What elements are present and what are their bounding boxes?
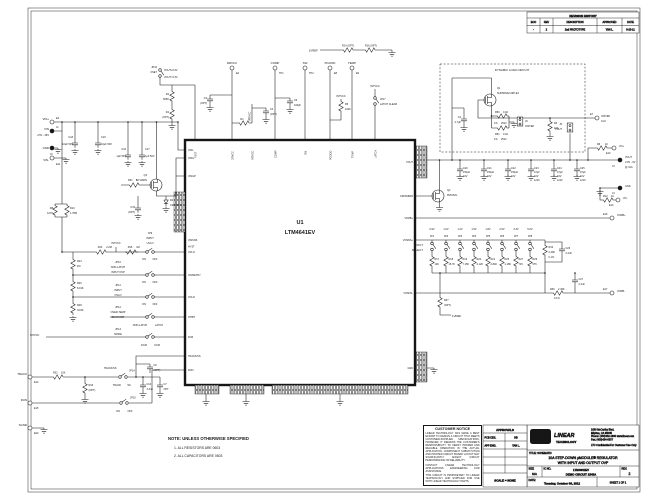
terminal-vin-minus[interactable]	[50, 156, 54, 160]
jumper-jp3[interactable]	[459, 242, 464, 251]
label-jp15-off: OFF	[128, 410, 133, 413]
input-section: VIN+ E3 VIN 4.5V - 38V J1 GND J2 VIN- E1…	[37, 117, 185, 252]
sel-v-7: 5.0V	[527, 228, 532, 231]
jumper-jp17-latch-clear[interactable]	[374, 97, 379, 106]
ground-symbol	[547, 135, 554, 140]
label-j5: J5	[559, 123, 562, 126]
testpoint-pgood[interactable]	[328, 66, 332, 70]
rev-val-desc: 2nd PROTOTYPE	[565, 29, 586, 32]
jumper-jp9[interactable]	[146, 248, 155, 253]
ground-symbol	[263, 118, 270, 123]
sel-r-6: R27	[519, 258, 524, 261]
company-name2: TECHNOLOGY	[556, 440, 576, 444]
label-c10: C10	[147, 383, 152, 386]
label-r3: R3	[554, 122, 558, 125]
jumper-jp1[interactable]	[431, 242, 436, 251]
label-e11: E11	[56, 163, 61, 166]
jack-gnd-out[interactable]	[618, 186, 622, 190]
cap-c10	[140, 382, 146, 390]
label-jp11-fn1: INPUT	[114, 289, 122, 292]
label-c22-v1: 150µF	[511, 171, 519, 174]
label-e14: E14	[34, 381, 39, 384]
label-c18: C18	[68, 136, 73, 139]
ground-symbol	[389, 51, 396, 56]
jumper-jp2[interactable]	[445, 242, 450, 251]
label-j5-fn: VOUT	[555, 128, 562, 131]
pin-sw: SW	[305, 150, 308, 155]
company-addr4: Fax: (408)434-0507	[591, 438, 614, 441]
label-r6: R6	[597, 143, 601, 146]
label-vin-plus: VIN+	[42, 117, 49, 121]
label-r28-value: 34.8K	[77, 309, 84, 312]
sel-r-2: R19	[463, 258, 468, 261]
jumper-jp6[interactable]	[501, 242, 506, 251]
label-jp14: JP14	[129, 370, 135, 373]
label-c4-opt: (OPT)	[270, 113, 277, 116]
sel-jp-6: JP7	[514, 235, 519, 238]
terminal-track[interactable]	[28, 375, 32, 379]
label-c4: C4	[270, 108, 274, 111]
jumper-jp10[interactable]	[146, 271, 155, 276]
vout-select-label2: SELECT	[412, 248, 423, 252]
label-r15: R15	[128, 246, 133, 249]
cap-c7	[157, 382, 163, 390]
label-r10: R10	[70, 207, 75, 210]
label-e10: E10	[606, 152, 611, 155]
ground-symbol	[169, 124, 176, 129]
label-c15-opt: (OPT)	[128, 211, 135, 214]
label-vout-name: VOUT	[625, 156, 632, 159]
label-jp10: JP10	[115, 261, 121, 264]
cap-c2	[461, 116, 467, 124]
sel-r-5: R25	[505, 258, 510, 261]
pin-ving: VING	[188, 157, 194, 160]
size-value: N/A	[532, 472, 537, 476]
label-trackss: TRACK/SS	[104, 367, 117, 370]
ground-symbol	[157, 392, 164, 397]
label-c26-value: 2.2nF	[566, 252, 573, 255]
ground-symbol	[431, 368, 438, 373]
label-jp13-ccm: CCM	[154, 344, 160, 347]
title-block: LT LINEAR TECHNOLOGY 1630 McCarthy Blvd.…	[527, 425, 639, 487]
ground-symbol	[63, 158, 70, 163]
jumper-jp15-run[interactable]	[120, 399, 129, 404]
label-r34-value: 2.49K	[549, 251, 556, 254]
sel-v-2: 1.2V	[457, 228, 462, 231]
label-e20: E20	[34, 432, 39, 435]
netflag-intvcc: INTVCC	[111, 242, 121, 245]
rev-val-date: 9-23-11	[626, 29, 635, 32]
sel-jp-1: JP2	[444, 235, 449, 238]
label-r24: R24	[77, 260, 82, 263]
sel-rv-2: 7.15K	[463, 263, 470, 266]
revision-history-table: REVISION HISTORY ECO REV DESCRIPTION APP…	[527, 12, 639, 33]
res-r37	[438, 296, 442, 309]
label-jp12-fn2: BEHAVIOR	[112, 316, 125, 319]
pin-otbh: OTBH	[188, 316, 195, 319]
testpoint-comp[interactable]	[273, 66, 277, 70]
ic-pin-block-bottom1	[195, 385, 219, 394]
label-j1: J1	[56, 126, 59, 129]
lt-logo: LT	[533, 434, 543, 443]
res-r51	[496, 126, 509, 130]
label-q2-part: PMOSXL	[447, 194, 458, 197]
label-jp10-on: ON	[142, 281, 146, 284]
res-r8	[53, 204, 57, 217]
label-jp11-off: OFF	[153, 303, 158, 306]
label-c24-v1: 47µF	[557, 171, 563, 174]
res-r12	[602, 198, 615, 202]
label-iostep: IOSTEP	[601, 115, 611, 118]
label-vo-minus: VO-	[623, 197, 628, 200]
label-temp: TEMP	[348, 61, 356, 65]
sel-rv-5: 1.18K	[505, 263, 512, 266]
jumper-jp8[interactable]	[529, 242, 534, 251]
label-c25: C25	[580, 167, 585, 170]
label-jp9: JP9	[148, 232, 153, 235]
label-r12-value: 10	[611, 195, 614, 198]
ground-symbol	[72, 149, 79, 154]
label-vin: VIN	[44, 127, 49, 131]
jumper-jp14-trackss[interactable]	[119, 373, 128, 378]
sel-jp-5: JP6	[500, 235, 505, 238]
label-c17-value: 1µF 50V	[145, 155, 155, 158]
label-jp16: JP16	[151, 66, 157, 69]
label-r4-opt: (OPT)	[162, 116, 169, 119]
label-c16: C16	[121, 148, 126, 151]
label-pgood: PGOOD	[325, 61, 336, 65]
sel-v-1: 1.0V	[443, 228, 448, 231]
testpoint-temp[interactable]	[350, 66, 354, 70]
customer-notice-p1: LINEAR TECHNOLOGY HAS MADE A BEST EFFORT…	[426, 432, 480, 462]
label-r5: R5	[345, 103, 349, 106]
label-c6-value: 100pF	[294, 104, 302, 107]
sel-r-1: R18	[449, 258, 454, 261]
label-r2-value: 665K	[163, 98, 169, 101]
label-r8: R8	[50, 207, 54, 210]
note-2: 2. ALL CAPACITORS ARE 0603	[174, 454, 222, 458]
res-r26	[71, 280, 75, 293]
label-vorb-plus: VORB+	[617, 214, 626, 217]
label-r31: R31	[128, 179, 133, 182]
label-c15: C15	[130, 206, 135, 209]
approvals-pcbdes-value: HB	[514, 437, 518, 440]
label-r37-opt: (OPT)	[444, 304, 451, 307]
customer-notice-p2: CONTACT LINEAR TECHNOLOGY APPLICATIONS E…	[426, 464, 480, 473]
label-j2: J2	[50, 153, 53, 156]
label-c10-value: 3.3nF	[147, 388, 154, 391]
notes-block: NOTE: UNLESS OTHERWISE SPECIFIED 1. ALL …	[168, 436, 249, 458]
res-r13	[95, 250, 108, 254]
label-r51: R51	[495, 133, 500, 136]
terminal-run[interactable]	[28, 401, 32, 405]
label-vo-plus: VO+	[619, 145, 625, 148]
sel-r-0: R17	[435, 258, 440, 261]
terminal-vin-plus[interactable]	[50, 120, 54, 124]
pin-run: RUN	[188, 369, 194, 372]
ground-symbol	[41, 428, 48, 433]
res-r4	[170, 108, 174, 121]
fet-q1	[482, 94, 496, 106]
ground-symbol	[55, 148, 62, 153]
ground-symbol	[436, 206, 443, 211]
netflag-1vref: 1VREF	[309, 49, 319, 53]
jack-vout[interactable]	[618, 158, 622, 162]
label-fset: FSET	[151, 71, 158, 74]
pin-drvcc: DRVCC	[232, 151, 235, 160]
netflag-intvcc-r5: INTVCC	[336, 95, 346, 98]
label-r51-value: 0.02	[503, 133, 508, 136]
approvals-pcbdes-label: PCB DES.	[485, 437, 497, 440]
label-c27-value: 2.2nF	[579, 283, 586, 286]
label-e16: E16	[603, 213, 608, 216]
label-c6: C6	[294, 99, 298, 102]
label-c19-value: 10µF 50V	[101, 143, 112, 146]
netflag-intvcc-mode: INTVCC	[30, 334, 40, 337]
customer-notice-p3: THIS CIRCUIT IS PROPRIETARY TO LINEAR TE…	[426, 474, 480, 483]
label-jp13-dcm: DCM	[141, 344, 147, 347]
label-r50-tol: 1%	[494, 122, 498, 125]
label-r14-opt: R14 (OPT)	[342, 45, 354, 48]
pin-iovretry: IOVRETRY	[188, 274, 201, 277]
pin-temp: TEMP	[352, 151, 355, 158]
top-testpoints-section: DRVCC E2 COMP TP1 SW TP2 PGOOD E8 TEMP E…	[200, 45, 397, 141]
sel-rv-0: 10K	[435, 263, 440, 266]
sheet-border	[28, 8, 640, 492]
label-r33: R33	[89, 384, 94, 387]
label-track: TRACK	[17, 372, 27, 376]
label-c25-v2: 10V	[580, 175, 585, 178]
pin-intvcc: INTVCC	[252, 151, 255, 161]
terminal-vorb-plus[interactable]	[610, 216, 614, 220]
label-jp13-fn: MODE	[114, 333, 122, 336]
label-c23-size: 1210	[534, 179, 540, 182]
note-title: NOTE: UNLESS OTHERWISE SPECIFIED	[168, 436, 249, 441]
terminal-sgnd[interactable]	[28, 426, 32, 430]
label-vorb-minus: VORB-	[617, 290, 625, 293]
date-label: DATE:	[529, 479, 536, 482]
label-tp2: TP2	[309, 72, 314, 75]
label-r36: R36	[550, 288, 555, 291]
label-jp9-off: OFF	[153, 258, 158, 261]
ground-symbol	[461, 126, 468, 131]
jack-gnd-in[interactable]	[50, 146, 54, 150]
sel-r-7: R29	[533, 258, 538, 261]
ground-symbol	[207, 106, 214, 111]
res-r36	[552, 291, 565, 295]
label-q1: Q1	[497, 87, 501, 90]
label-r15-value: 1M	[136, 246, 139, 249]
cap-c3	[207, 96, 213, 104]
label-jp10-fn2: INPUT OVP	[111, 271, 125, 274]
label-c25-size: 1210	[580, 179, 586, 182]
label-jp12-fn1: OVER-TEMP	[111, 311, 126, 314]
dynamic-load-section: DYNAMIC LOAD CIRCUIT Q1 SUD50N02-09P-E3 …	[440, 64, 611, 160]
res-r19	[458, 255, 462, 268]
ground-symbol	[95, 149, 102, 154]
size-label: SIZE	[529, 468, 535, 471]
pin-comp: COMP	[275, 150, 278, 158]
pin-vout: VOUT	[406, 161, 413, 164]
label-r5-value: 100K	[345, 108, 351, 111]
pin-vinl: VINL	[188, 149, 194, 152]
label-r51-size: 2512	[501, 138, 507, 141]
ground-symbol	[287, 108, 294, 113]
label-r36-tol: 0.1%	[554, 297, 560, 300]
jumper-jp12[interactable]	[146, 313, 155, 318]
label-r50-size: 2512	[501, 122, 507, 125]
label-q2: Q2	[447, 189, 451, 192]
label-r50-value: 0.02	[503, 111, 508, 114]
ground-symbol	[70, 316, 77, 321]
sel-jp-0: JP1	[430, 235, 435, 238]
res-r28	[71, 302, 75, 315]
res-r50	[496, 114, 509, 118]
res-r10	[65, 204, 69, 217]
label-c9-opt: (OPT)	[154, 369, 161, 372]
pin-crowbar: CROWBAR	[400, 195, 413, 198]
res-r16	[364, 48, 377, 52]
jumper-jp4[interactable]	[473, 242, 478, 251]
label-c3-opt: (OPT)	[200, 102, 207, 105]
testpoint-drvcc[interactable]	[230, 66, 234, 70]
terminal-iostep-clk[interactable]	[595, 116, 599, 120]
label-e17: E17	[603, 288, 608, 291]
label-jp9-on: ON	[142, 258, 146, 261]
res-r31	[128, 183, 141, 187]
label-c21-v1: 150µF	[487, 171, 495, 174]
rev-col-rev: REV	[544, 21, 549, 24]
jumper-jp11[interactable]	[146, 293, 155, 298]
fet-q2-crowbar	[430, 190, 444, 202]
label-jp11-fn2: OVLO	[115, 294, 122, 297]
pin-trackss: TRACK/SS	[188, 355, 201, 358]
testpoint-sw[interactable]	[303, 66, 307, 70]
label-vout-range: 0.9V - 6V	[625, 161, 636, 164]
res-r25	[500, 255, 504, 268]
label-sgnd: SGND	[19, 423, 27, 427]
sel-rv-7: 576	[533, 263, 538, 266]
res-r17	[430, 255, 434, 268]
label-c22: C22	[511, 167, 516, 170]
res-r29	[528, 255, 532, 268]
date-value: Tuesday, October 09, 2012	[544, 482, 580, 486]
res-r3	[548, 120, 552, 133]
label-e8: E8	[334, 72, 338, 75]
label-r32: R32	[53, 372, 58, 375]
fet-q3	[148, 179, 162, 191]
label-r34: R34	[549, 246, 554, 249]
label-r26: R26	[77, 282, 82, 285]
label-r51-tol: 1%	[494, 138, 498, 141]
label-j6-fn: IOSTEP	[525, 125, 535, 128]
label-jp10-off: OFF	[153, 281, 158, 284]
label-r16-opt: R16 (OPT)	[365, 45, 377, 48]
vout-select-label1: VOUT	[415, 243, 423, 247]
label-e3: E3	[56, 117, 60, 120]
sel-v-5: 2.5V	[499, 228, 504, 231]
sel-rv-4: 2.84K	[491, 263, 498, 266]
cap-c15	[135, 205, 141, 213]
label-c25-v1: 47µF	[580, 171, 586, 174]
label-r50: R50	[495, 111, 500, 114]
terminal-vo-minus[interactable]	[616, 198, 620, 202]
rev-title: REVISION HISTORY	[569, 14, 596, 18]
label-jp14-track: TRACK	[113, 384, 122, 387]
label-r6-value: 10	[605, 143, 608, 146]
cap-c27	[572, 277, 578, 285]
netflag-intvcc-rail: INTVCC	[249, 112, 252, 122]
terminal-vo-plus[interactable]	[612, 146, 616, 150]
approvals-title: APPROVALS	[496, 428, 514, 432]
demo-circuit-number: DEMO CIRCUIT 1543A	[566, 473, 597, 477]
ground-symbol	[203, 400, 210, 405]
drawing-title-1: 10A STEP-DOWN µMODULE® REGULATOR	[548, 456, 618, 460]
label-c24-v2: 10V	[557, 175, 562, 178]
jack-vin[interactable]	[50, 129, 54, 133]
label-c26: C26	[566, 247, 571, 250]
pin-vinsns: VINSNS	[188, 239, 198, 242]
sel-v-0: 0.9V	[429, 228, 434, 231]
label-c27: C27	[579, 278, 584, 281]
label-run: RUN	[21, 398, 27, 402]
sel-jp-2: JP3	[458, 235, 463, 238]
schematic-drawing: REVISION HISTORY ECO REV DESCRIPTION APP…	[0, 0, 647, 500]
label-jp15: JP15	[130, 397, 136, 400]
rev-val-appr: YAN L.	[606, 29, 614, 32]
jumper-jp13[interactable]	[146, 333, 155, 338]
rev-label: REV.	[622, 468, 628, 471]
res-r6	[596, 146, 609, 150]
vout-select-section: VOUT SELECT 0.9V 1.0V 1.2V 1.5V 1.8V 2.5…	[412, 228, 625, 318]
company-confidential: LTC Confidential-For Customer Use Only	[591, 444, 637, 447]
sel-v-6: 3.3V	[513, 228, 518, 231]
label-c20: C20	[463, 167, 468, 170]
sel-rv-1: 15.7K	[449, 263, 456, 266]
label-c23: C23	[534, 167, 539, 170]
label-jp10-fn1: NON-LATCH	[111, 266, 126, 269]
label-c9: C9	[154, 364, 158, 367]
jumper-jp7[interactable]	[515, 242, 520, 251]
res-r20	[472, 255, 476, 268]
label-r24-value: 1M	[77, 265, 80, 268]
res-r24	[71, 258, 75, 271]
customer-notice-title: CUSTOMER NOTICE	[426, 427, 480, 431]
ic-pin-block-left	[174, 192, 185, 232]
diode-d2	[164, 197, 168, 207]
label-comp: COMP	[271, 61, 280, 65]
bottom-grounds	[203, 394, 344, 405]
label-c24: C24	[557, 167, 562, 170]
ground-symbol	[243, 400, 250, 405]
label-clk: CLK	[601, 120, 606, 123]
approvals-appeng-label: APP ENG.	[485, 445, 497, 448]
label-r33-opt: (OPT)	[89, 389, 96, 392]
label-jp14-ss: SS	[127, 384, 131, 387]
label-vin-minus: VIN-	[43, 158, 49, 162]
connector-j5[interactable]	[567, 123, 573, 132]
res-r2	[170, 90, 174, 103]
schematic-sheet: REVISION HISTORY ECO REV DESCRIPTION APP…	[0, 0, 647, 500]
terminal-vorb-minus[interactable]	[610, 291, 614, 295]
ic-pin-block-vout	[416, 146, 427, 178]
jumper-jp5[interactable]	[487, 242, 492, 251]
rev-value: 2	[629, 472, 631, 476]
rev-col-appr: APPROVED	[603, 21, 617, 24]
ground-symbol	[337, 400, 344, 405]
label-fset-opt2: VOUT>3.3V	[164, 76, 178, 79]
title-label: TITLE: SCHEMATIC	[529, 452, 552, 455]
